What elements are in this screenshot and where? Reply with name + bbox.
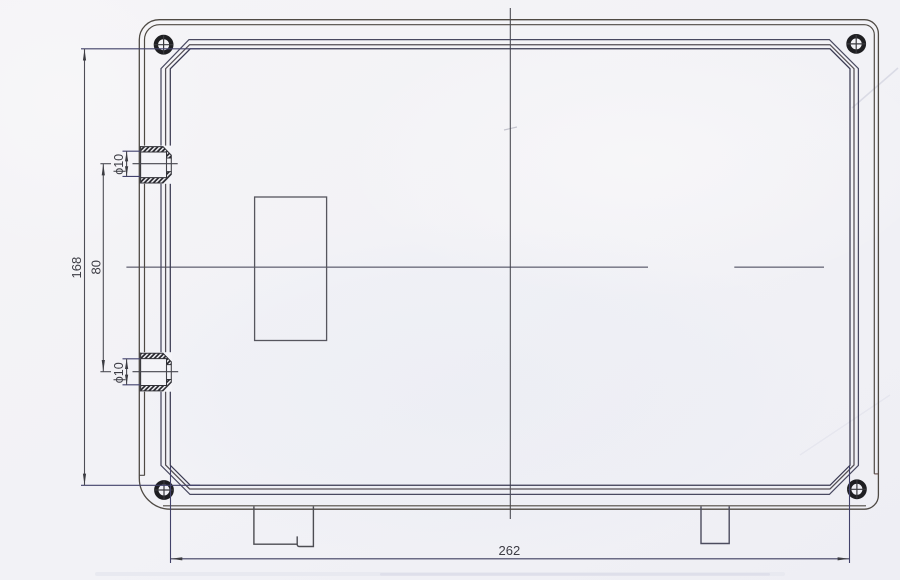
svg-text:262: 262 bbox=[499, 543, 521, 558]
svg-text:80: 80 bbox=[89, 260, 104, 274]
svg-text:168: 168 bbox=[69, 257, 84, 279]
svg-text:ϕ10: ϕ10 bbox=[112, 154, 126, 175]
svg-text:ϕ10: ϕ10 bbox=[112, 362, 126, 383]
